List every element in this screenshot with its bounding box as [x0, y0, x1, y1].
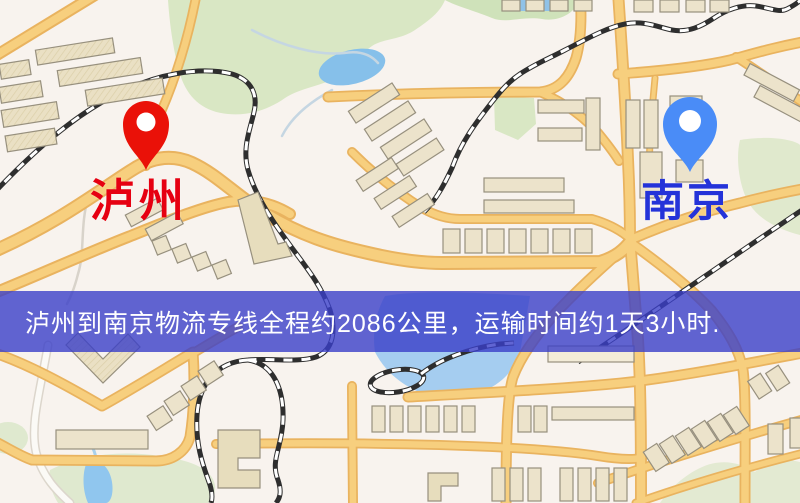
origin-pin-hole: [137, 113, 156, 132]
destination-pin-hole: [679, 110, 701, 132]
destination-label: 南京: [641, 181, 733, 224]
origin-label: 泸州: [90, 178, 188, 223]
route-info-banner: 泸州到南京物流专线全程约2086公里，运输时间约1天3小时.: [0, 291, 800, 352]
map-canvas[interactable]: [0, 0, 800, 503]
map-screenshot: 泸州 南京 泸州到南京物流专线全程约2086公里，运输时间约1天3小时.: [0, 0, 800, 503]
route-info-text: 泸州到南京物流专线全程约2086公里，运输时间约1天3小时.: [25, 304, 720, 340]
